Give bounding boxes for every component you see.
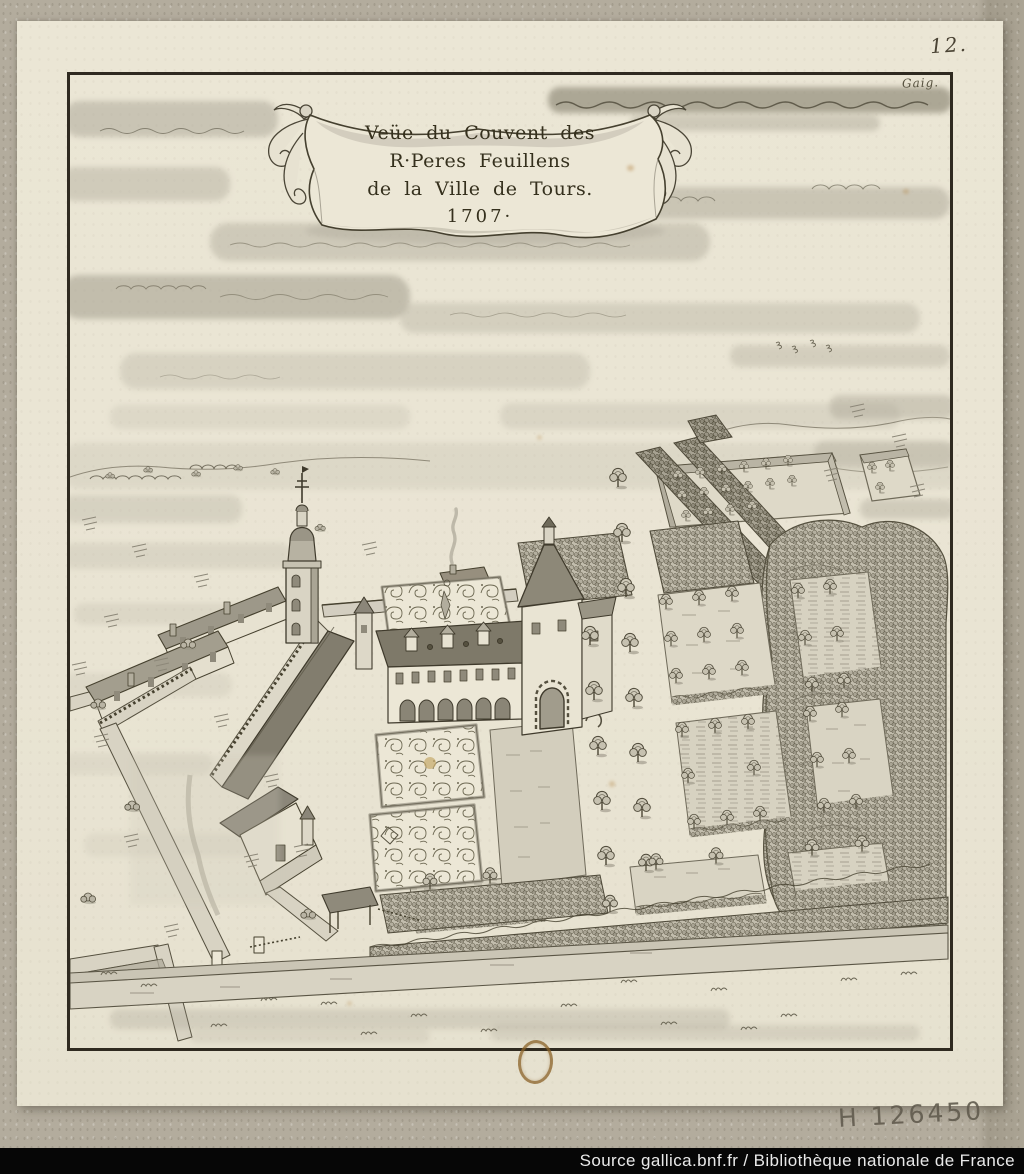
cartouche-line-2: R·Peres Feuillens xyxy=(350,147,610,175)
credit-bar: Source gallica.bnf.fr / Bibliothèque nat… xyxy=(0,1148,1024,1174)
collection-mark: Gaig. xyxy=(902,75,940,90)
shelfmark: H 126450 xyxy=(837,1096,985,1133)
foxing-spot xyxy=(537,435,542,440)
foxing-spot xyxy=(609,781,615,787)
foxing-spot xyxy=(627,165,634,171)
credit-text: Source gallica.bnf.fr / Bibliothèque nat… xyxy=(580,1151,1015,1171)
ink-border-frame: Veüe du Couvent des R·Peres Feuillens de… xyxy=(67,72,953,1051)
scan-root: { "cartouche": { "line1": "Veüe du Couve… xyxy=(0,0,1024,1174)
foxing-spot xyxy=(347,1001,352,1006)
foxing-spot xyxy=(903,189,909,194)
drawing-sheet: Veüe du Couvent des R·Peres Feuillens de… xyxy=(17,21,1003,1106)
cartouche-line-3: de la Ville de Tours. xyxy=(350,175,610,203)
cartouche-line-1: Veüe du Couvent des xyxy=(350,119,610,147)
cartouche-title: Veüe du Couvent des R·Peres Feuillens de… xyxy=(350,119,610,231)
cartouche-date: 1707· xyxy=(350,203,610,231)
page-number: 12. xyxy=(929,32,968,59)
